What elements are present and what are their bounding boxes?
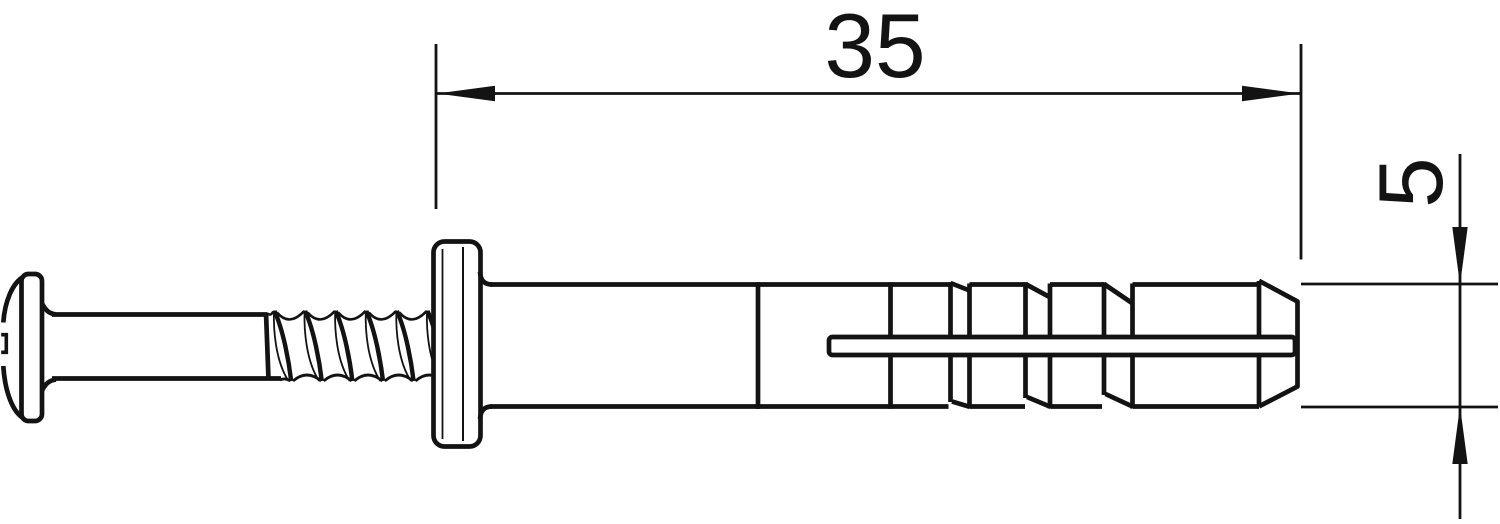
- svg-text:5: 5: [1361, 157, 1462, 208]
- svg-text:35: 35: [824, 0, 925, 97]
